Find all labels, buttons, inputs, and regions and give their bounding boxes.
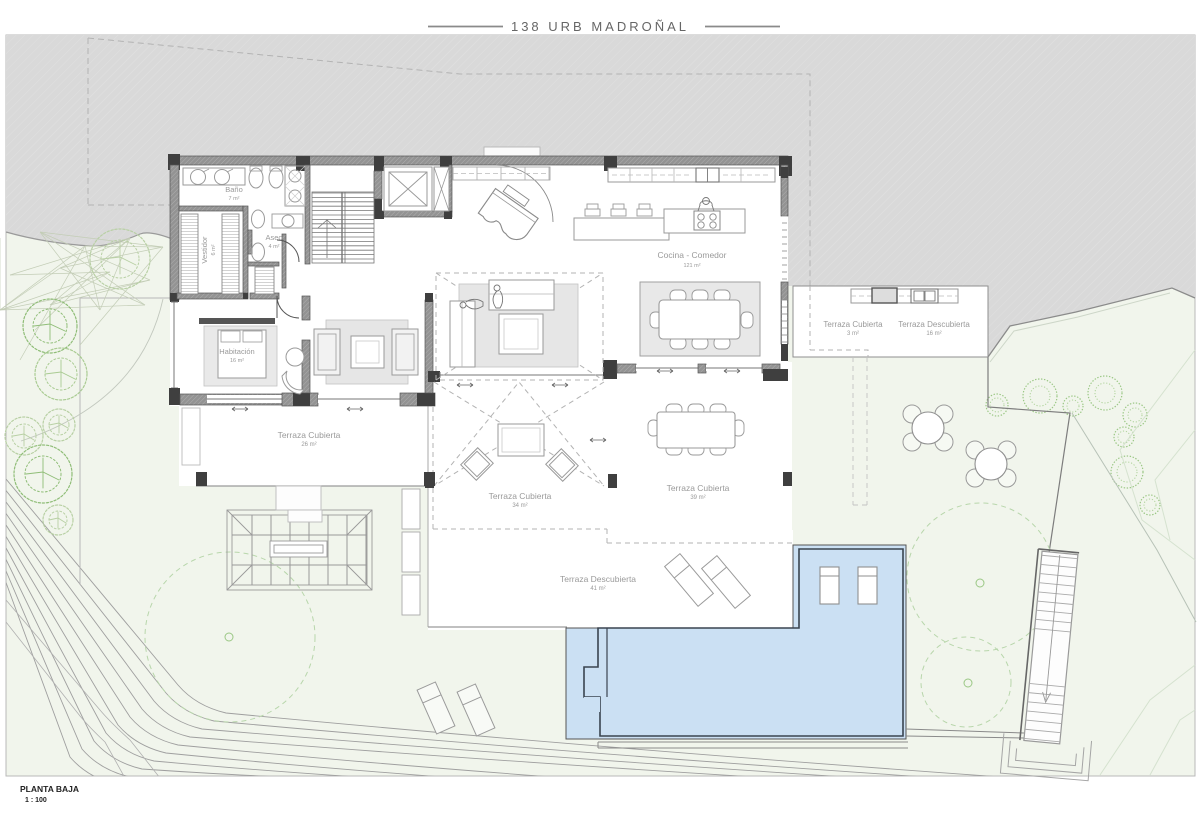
svg-text:16 m²: 16 m²	[230, 358, 244, 364]
svg-text:PLANTA BAJA: PLANTA BAJA	[20, 784, 79, 794]
svg-text:16 m²: 16 m²	[926, 331, 941, 337]
svg-text:Terraza Cubierta: Terraza Cubierta	[823, 320, 883, 329]
svg-text:Cocina - Comedor: Cocina - Comedor	[658, 250, 727, 260]
svg-text:Habitación: Habitación	[219, 347, 254, 356]
svg-text:Aseo: Aseo	[265, 233, 282, 242]
svg-text:41 m²: 41 m²	[590, 586, 605, 592]
svg-text:4 m²: 4 m²	[269, 244, 280, 250]
svg-text:138 URB MADROÑAL: 138 URB MADROÑAL	[511, 19, 689, 34]
svg-text:1 : 100: 1 : 100	[25, 797, 47, 804]
svg-text:121 m²: 121 m²	[683, 263, 700, 269]
svg-text:7 m²: 7 m²	[229, 196, 240, 202]
svg-text:3 m²: 3 m²	[847, 331, 859, 337]
svg-text:Baño: Baño	[225, 185, 243, 194]
svg-text:Terraza Cubierta: Terraza Cubierta	[667, 483, 730, 493]
svg-text:34 m²: 34 m²	[512, 503, 527, 509]
svg-text:Terraza Cubierta: Terraza Cubierta	[489, 491, 552, 501]
svg-text:26 m²: 26 m²	[301, 442, 316, 448]
svg-text:Vestidor: Vestidor	[200, 236, 209, 264]
svg-text:Terraza Cubierta: Terraza Cubierta	[278, 430, 341, 440]
svg-text:6 m²: 6 m²	[211, 244, 217, 255]
svg-text:Terraza Descubierta: Terraza Descubierta	[898, 320, 970, 329]
svg-text:Terraza Descubierta: Terraza Descubierta	[560, 574, 636, 584]
svg-text:39 m²: 39 m²	[690, 495, 705, 501]
